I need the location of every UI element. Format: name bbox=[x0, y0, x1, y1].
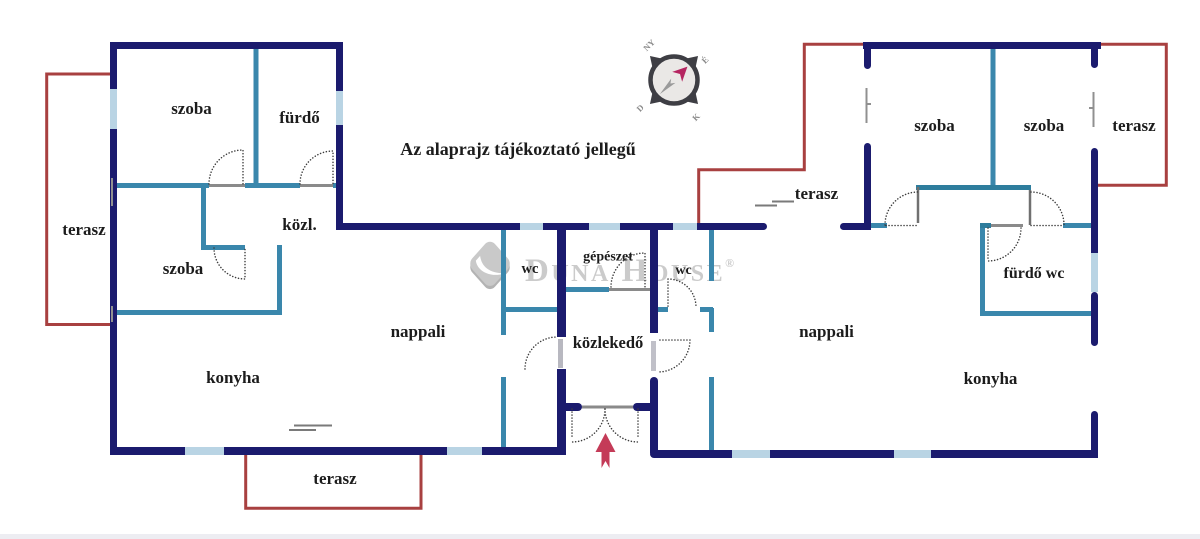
svg-text:terasz: terasz bbox=[62, 220, 106, 239]
svg-text:fürdő wc: fürdő wc bbox=[1004, 265, 1065, 282]
svg-text:terasz: terasz bbox=[313, 469, 357, 488]
svg-text:közl.: közl. bbox=[282, 215, 316, 234]
svg-text:nappali: nappali bbox=[391, 322, 446, 341]
svg-text:konyha: konyha bbox=[206, 368, 260, 387]
svg-text:fürdő: fürdő bbox=[279, 108, 320, 127]
svg-text:wc: wc bbox=[522, 261, 539, 277]
svg-text:konyha: konyha bbox=[964, 369, 1018, 388]
svg-text:gépészet: gépészet bbox=[583, 250, 633, 265]
svg-text:szoba: szoba bbox=[163, 259, 204, 278]
svg-text:nappali: nappali bbox=[799, 322, 854, 341]
svg-text:Az alaprajz tájékoztató jelleg: Az alaprajz tájékoztató jellegű bbox=[400, 139, 635, 159]
svg-text:szoba: szoba bbox=[1024, 116, 1065, 135]
svg-text:szoba: szoba bbox=[171, 99, 212, 118]
svg-text:szoba: szoba bbox=[914, 116, 955, 135]
svg-text:közlekedő: közlekedő bbox=[573, 333, 644, 352]
svg-text:terasz: terasz bbox=[1112, 116, 1156, 135]
svg-text:wc: wc bbox=[675, 263, 691, 278]
svg-text:terasz: terasz bbox=[795, 184, 839, 203]
